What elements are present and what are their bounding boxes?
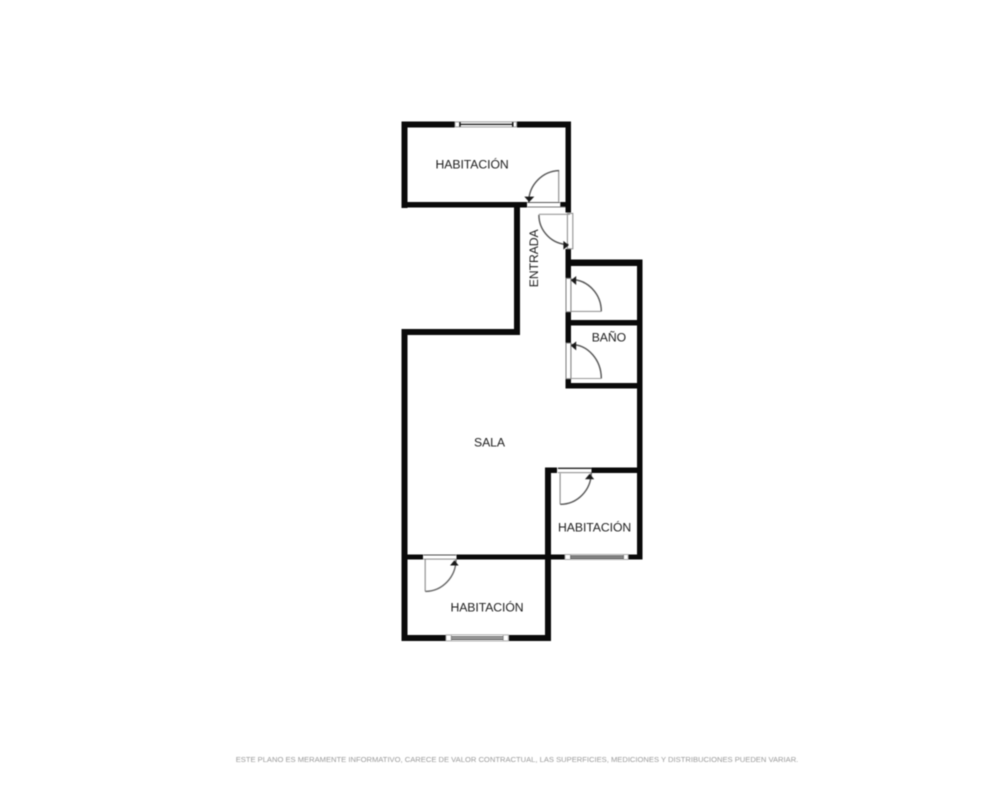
svg-text:BAÑO: BAÑO <box>592 330 626 344</box>
svg-text:ENTRADA: ENTRADA <box>527 228 541 287</box>
svg-text:HABITACIÓN: HABITACIÓN <box>558 519 631 534</box>
svg-text:HABITACIÓN: HABITACIÓN <box>450 600 523 615</box>
svg-text:SALA: SALA <box>474 435 506 449</box>
svg-text:HABITACIÓN: HABITACIÓN <box>436 157 509 172</box>
svg-text:ESTE PLANO ES MERAMENTE INFORM: ESTE PLANO ES MERAMENTE INFORMATIVO, CAR… <box>236 755 799 764</box>
